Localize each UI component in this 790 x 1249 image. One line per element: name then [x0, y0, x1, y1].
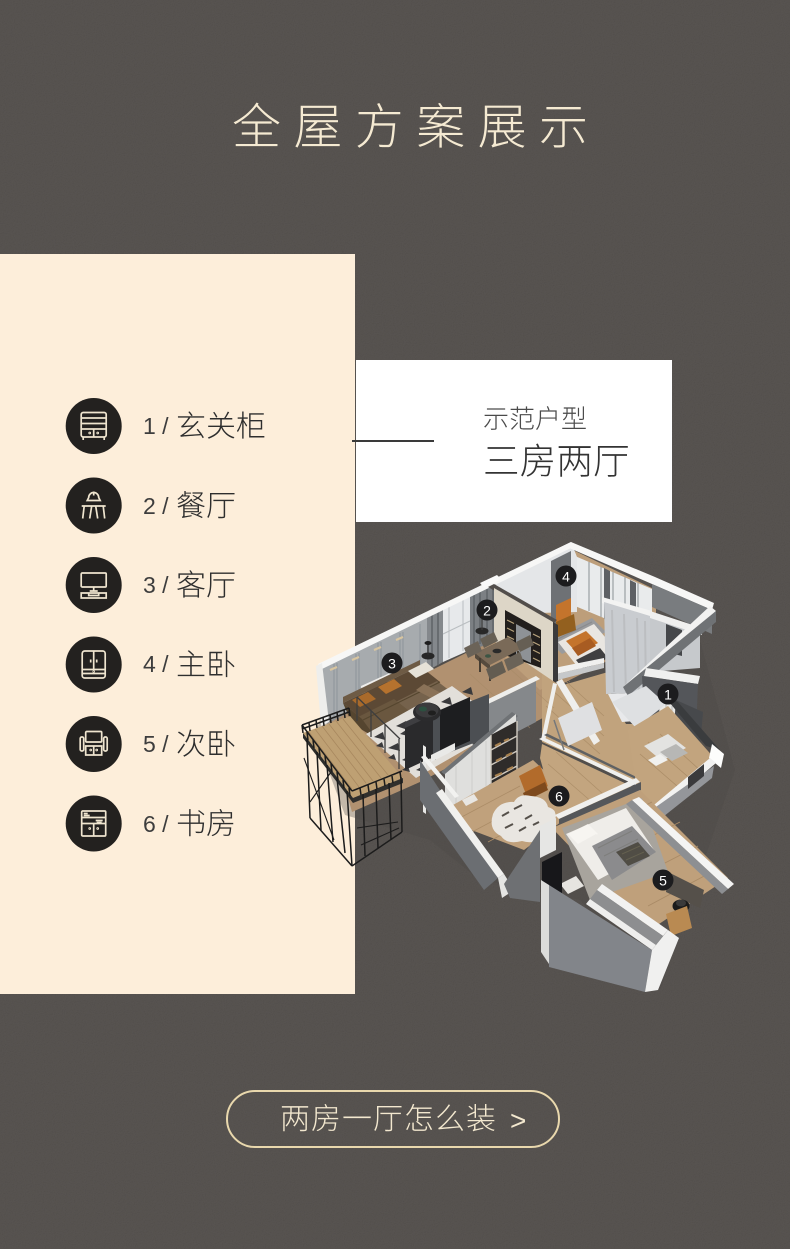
svg-text:3 /: 3 /: [143, 572, 169, 598]
svg-text:1 /: 1 /: [143, 413, 169, 439]
svg-text:4: 4: [562, 568, 570, 584]
svg-text:5 /: 5 /: [143, 731, 169, 757]
svg-text:2 /: 2 /: [143, 493, 169, 519]
svg-text:3: 3: [388, 655, 396, 671]
svg-text:6: 6: [555, 788, 563, 804]
svg-text:4 /: 4 /: [143, 651, 169, 677]
svg-text:>: >: [510, 1105, 526, 1136]
svg-text:1: 1: [664, 686, 672, 702]
svg-text:6 /: 6 /: [143, 811, 169, 837]
svg-text:2: 2: [483, 602, 491, 618]
svg-text:5: 5: [659, 872, 667, 888]
